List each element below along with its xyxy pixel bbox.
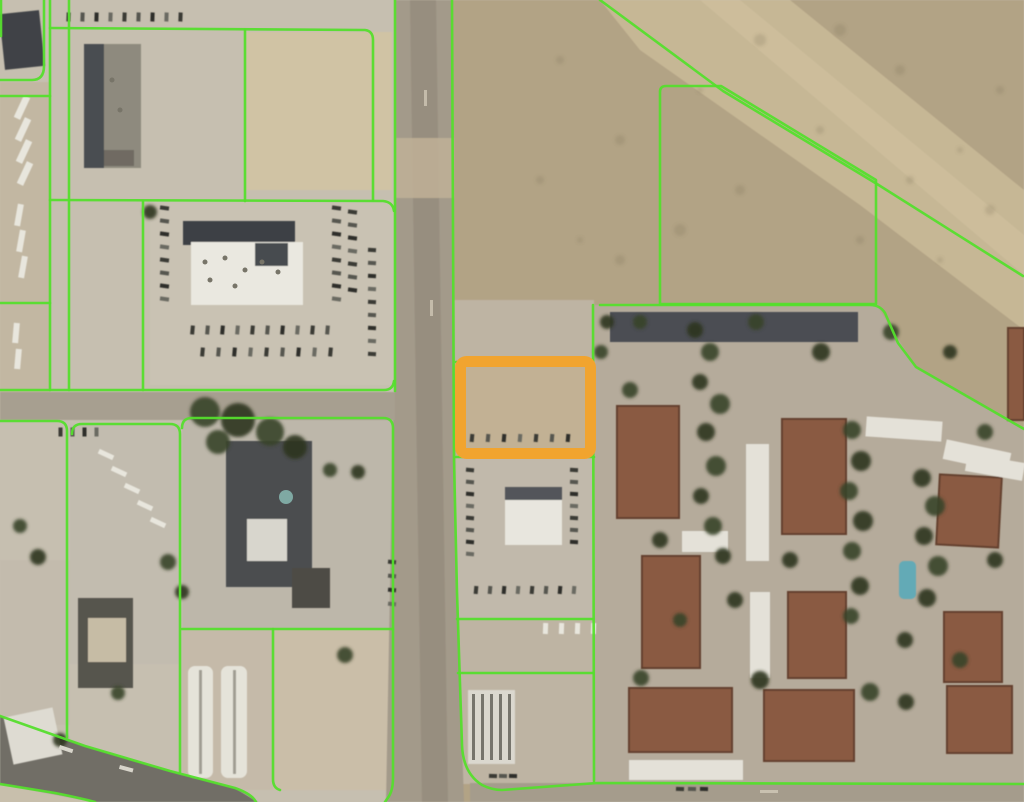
tree-canopy [715,548,731,564]
vehicle [509,774,517,778]
desert-scrub [834,24,846,36]
tree-canopy [915,527,933,545]
building [0,10,45,70]
rooftop-unit [110,78,115,83]
desert-scrub [906,176,914,184]
vehicle [488,586,493,594]
tree-canopy [190,397,220,427]
vehicle [466,516,474,521]
rooftop-unit [118,108,123,113]
tree-canopy [913,469,931,487]
vehicle [368,313,376,318]
tree-canopy [851,451,871,471]
vehicle [368,326,376,331]
tree-canopy [843,608,859,624]
tree-canopy [652,532,668,548]
ground-mark [499,694,502,760]
tree-canopy [987,552,1003,568]
tree-canopy [697,423,715,441]
vehicle [325,325,330,334]
tree-canopy [701,343,719,361]
vehicle [700,787,708,791]
vehicle [280,347,285,356]
vehicle [368,339,376,344]
rooftop-unit [279,490,293,504]
vehicle [466,492,474,497]
vehicle [499,774,507,778]
ground-mark [490,694,493,760]
rooftop-unit [260,260,265,265]
tree-canopy [351,465,365,479]
tree-canopy [693,488,709,504]
building [782,419,846,534]
vehicle [368,274,376,279]
building [88,618,126,662]
tree-canopy [928,556,948,576]
tree-canopy [782,552,798,568]
desert-scrub [674,224,686,236]
tree-canopy [861,683,879,701]
vehicle [368,261,376,266]
vehicle [466,528,474,533]
tree-canopy [143,205,157,219]
rooftop-unit [203,260,208,265]
vehicle [108,12,112,21]
tree-canopy [851,577,869,595]
desert-scrub [895,65,905,75]
vehicle [328,347,333,356]
desert-scrub [957,147,963,153]
vehicle [489,774,497,778]
tree-canopy [283,435,307,459]
vehicle [310,325,315,334]
vehicle [368,248,376,253]
ground-mark [760,790,778,793]
tree-canopy [727,592,743,608]
tree-canopy [853,511,873,531]
desert-scrub [697,87,703,93]
building [610,312,858,342]
tree-canopy [704,517,722,535]
vehicle [250,325,255,334]
desert-scrub [996,86,1004,94]
vehicle [688,787,696,791]
building [505,487,562,500]
rooftop-unit [223,256,228,261]
tree-canopy [898,694,914,710]
tree-canopy [751,671,769,689]
building [642,556,700,668]
vehicle [232,347,237,356]
building [104,150,134,166]
vehicle [558,586,563,594]
tree-canopy [323,463,337,477]
vehicle [150,12,154,21]
vehicle [205,325,210,334]
vehicle [466,540,474,545]
tree-canopy [692,374,708,390]
building [233,670,236,774]
tree-canopy [337,647,353,663]
tree-canopy [622,382,638,398]
building [247,519,287,561]
vehicle [570,540,578,544]
vehicle [566,434,571,442]
vehicle [312,347,317,356]
desert-scrub [615,135,625,145]
tree-canopy [175,585,189,599]
desert-scrub [937,257,943,263]
vehicle [575,623,580,634]
desert-scrub [735,185,745,195]
building [199,670,202,774]
vehicle [122,12,126,21]
vehicle [248,347,253,356]
rooftop-unit [208,278,213,283]
building [746,444,769,561]
tree-canopy [594,345,608,359]
building [899,561,916,599]
building [629,688,732,752]
vehicle [570,504,578,508]
building [629,760,743,780]
tree-canopy [706,456,726,476]
desert-scrub [556,56,564,64]
tree-canopy [256,418,284,446]
building [84,44,104,168]
tree-canopy [710,394,730,414]
desert-scrub [816,126,824,134]
desert-scrub [615,255,625,265]
vehicle [466,468,474,473]
vehicle [296,347,301,356]
tree-canopy [952,652,968,668]
vehicle [530,586,535,594]
vehicle [264,347,269,356]
terrain-patch [0,560,70,725]
vehicle [83,428,87,437]
rooftop-unit [276,270,281,275]
vehicle [280,325,285,334]
tree-canopy [812,343,830,361]
ground-mark [424,90,427,106]
terrain-patch [246,32,392,190]
tree-canopy [843,421,861,439]
tree-canopy [633,315,647,329]
ground-mark [481,694,484,760]
tree-canopy [897,632,913,648]
tree-canopy [160,554,176,570]
vehicle [570,492,578,496]
vehicle [559,623,564,634]
tree-canopy [633,670,649,686]
desert-scrub [536,176,544,184]
vehicle [534,434,539,442]
tree-canopy [977,424,993,440]
vehicle [502,586,507,594]
vehicle [59,428,63,437]
vehicle [486,434,491,442]
building [764,690,854,761]
rooftop-unit [233,284,238,289]
satellite-map-image[interactable] [0,0,1024,802]
vehicle [570,468,578,472]
building [226,441,312,587]
vehicle [368,352,376,357]
vehicle [502,434,507,442]
tree-canopy [687,322,703,338]
desert-scrub [985,205,995,215]
vehicle [516,586,521,594]
tree-canopy [13,519,27,533]
vehicle [368,300,376,305]
tree-canopy [748,314,764,330]
rooftop-unit [243,268,248,273]
building [788,592,846,678]
building [750,592,770,678]
vehicle [676,787,684,791]
vehicle [466,480,474,485]
tree-canopy [206,430,230,454]
vehicle [470,434,475,442]
desert-scrub [856,236,864,244]
vehicle [80,12,84,21]
building [183,221,295,245]
vehicle [216,347,221,356]
vehicle [518,434,523,442]
vehicle [164,12,168,21]
terrain-patch [396,138,454,198]
building [947,686,1012,753]
ground-mark [430,300,433,316]
building [292,568,330,608]
building [944,612,1002,682]
vehicle [466,504,474,509]
building [936,474,1002,547]
building [1008,328,1024,420]
vehicle [178,12,182,21]
vehicle [94,12,98,21]
tree-canopy [600,315,614,329]
terrain-patch [273,629,393,790]
vehicle [368,287,376,292]
vehicle [550,434,555,442]
tree-canopy [30,549,46,565]
terrain-layer [0,0,1024,802]
tree-canopy [925,496,945,516]
tree-canopy [111,686,125,700]
vehicle [200,347,205,356]
tree-canopy [918,589,936,607]
building [617,406,679,518]
vehicle [570,528,578,532]
vehicle [136,12,140,21]
desert-scrub [577,237,583,243]
vehicle [570,480,578,484]
vehicle [190,325,195,334]
vehicle [265,325,270,334]
vehicle [543,623,548,634]
desert-scrub [754,34,766,46]
vehicle [235,325,240,334]
tree-canopy [673,613,687,627]
vehicle [220,325,225,334]
vehicle [466,552,474,557]
tree-canopy [221,403,255,437]
tree-canopy [840,482,858,500]
vehicle [544,586,549,594]
ground-mark [472,694,475,760]
aerial-map-viewport[interactable] [0,0,1024,802]
vehicle [295,325,300,334]
vehicle [570,516,578,520]
vehicle [572,586,577,594]
tree-canopy [843,542,861,560]
tree-canopy [943,345,957,359]
vehicle [95,428,99,437]
ground-mark [508,694,511,760]
vehicle [474,586,479,594]
terrain-patch [455,360,595,458]
